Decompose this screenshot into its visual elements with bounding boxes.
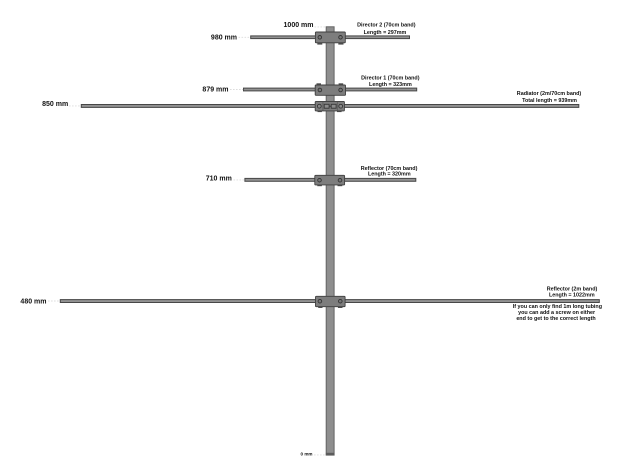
svg-text:980 mm: 980 mm bbox=[211, 35, 237, 42]
svg-text:Length = 323mm: Length = 323mm bbox=[369, 82, 412, 88]
svg-text:710 mm: 710 mm bbox=[206, 176, 232, 183]
svg-text:Length = 297mm: Length = 297mm bbox=[364, 30, 407, 36]
svg-text:879 mm: 879 mm bbox=[202, 87, 228, 94]
svg-text:Total length = 939mm: Total length = 939mm bbox=[522, 98, 577, 104]
svg-text:Director 1 (70cm band): Director 1 (70cm band) bbox=[361, 76, 420, 82]
svg-text:850 mm: 850 mm bbox=[42, 101, 68, 108]
svg-text:Director 2 (70cm band): Director 2 (70cm band) bbox=[357, 23, 416, 29]
svg-text:If you can only find 1m long t: If you can only find 1m long tubing bbox=[513, 304, 602, 310]
svg-text:you can add a screw on either: you can add a screw on either bbox=[518, 310, 596, 316]
svg-text:Length = 320mm: Length = 320mm bbox=[368, 172, 411, 178]
svg-text:end to get to the correct leng: end to get to the correct length bbox=[516, 316, 595, 322]
svg-text:Reflector (2m band): Reflector (2m band) bbox=[547, 287, 598, 293]
svg-text:0 mm: 0 mm bbox=[300, 451, 312, 456]
svg-text:480 mm: 480 mm bbox=[20, 298, 46, 305]
svg-text:Radiator (2m/70cm band): Radiator (2m/70cm band) bbox=[517, 91, 582, 97]
svg-text:Length = 1022mm: Length = 1022mm bbox=[549, 293, 595, 299]
svg-text:1000 mm: 1000 mm bbox=[284, 22, 314, 29]
